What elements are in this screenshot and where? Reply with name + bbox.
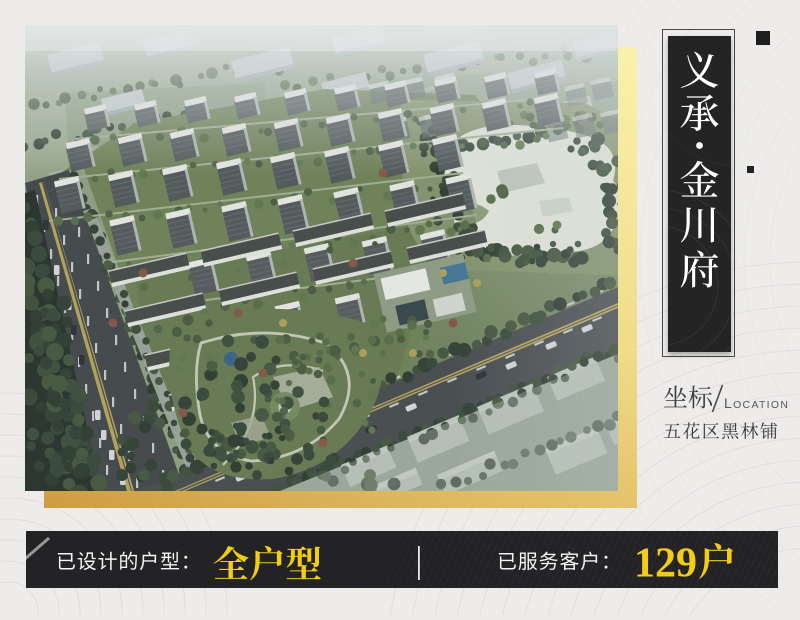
svg-text:129: 129 <box>634 541 697 587</box>
svg-text:LOCATION: LOCATION <box>724 395 789 411</box>
